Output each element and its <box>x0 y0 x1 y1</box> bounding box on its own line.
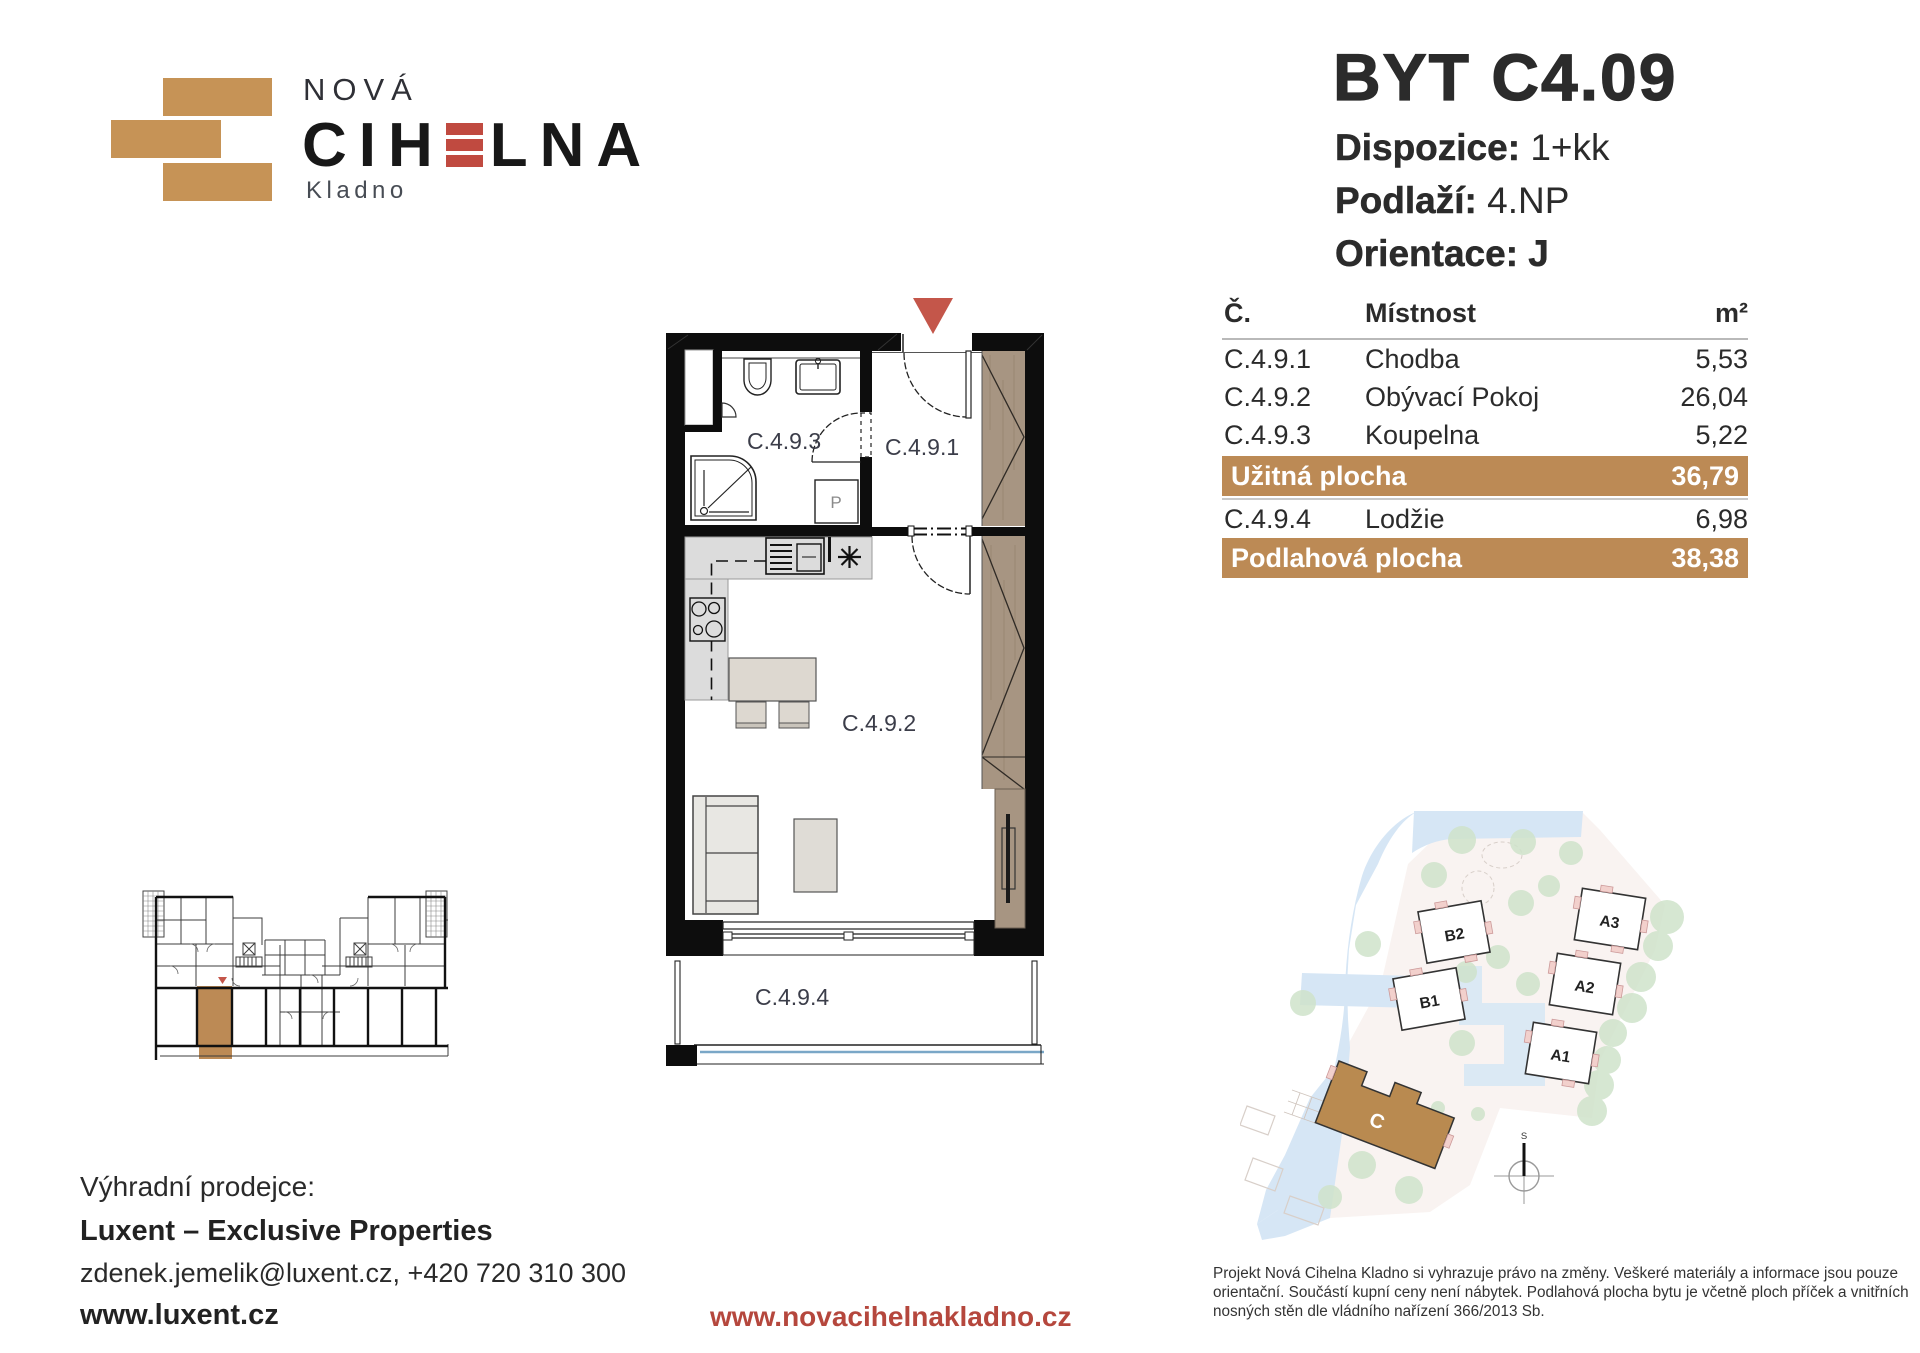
svg-text:A2: A2 <box>1573 978 1595 998</box>
svg-text:P: P <box>830 493 841 512</box>
svg-text:A3: A3 <box>1598 913 1621 933</box>
svg-text:B2: B2 <box>1443 925 1465 945</box>
svg-text:C.4.9.3: C.4.9.3 <box>747 428 821 454</box>
svg-text:C.4.9.4: C.4.9.4 <box>755 984 829 1010</box>
svg-text:A1: A1 <box>1549 1047 1572 1067</box>
svg-text:B1: B1 <box>1418 992 1441 1012</box>
svg-text:C.4.9.2: C.4.9.2 <box>842 710 916 736</box>
svg-text:C.4.9.1: C.4.9.1 <box>885 434 959 460</box>
svg-text:S: S <box>1521 1131 1527 1142</box>
